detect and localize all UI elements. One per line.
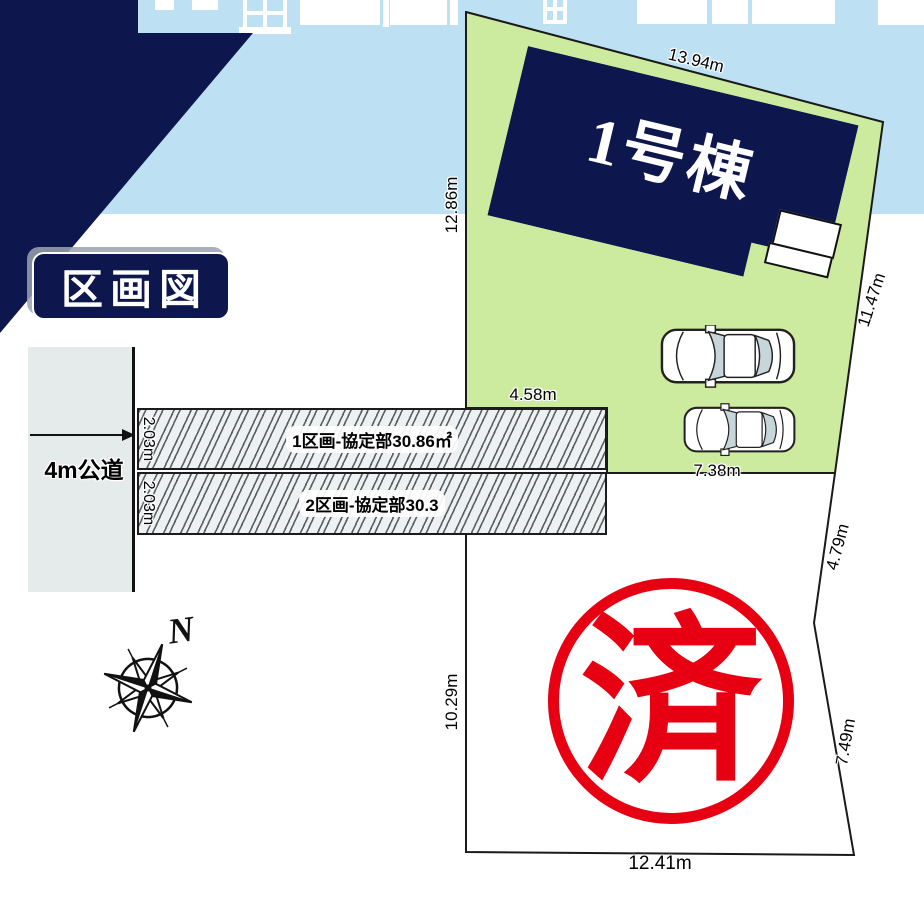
strip-1-width-dim: 2.03m	[139, 417, 157, 461]
strip-1: 1区画-協定部30.86㎡	[137, 408, 607, 470]
dim-inner-left: 4.58m	[509, 385, 556, 405]
strip-2: 2区画-協定部30.3	[137, 472, 607, 535]
road-label: 4m公道	[44, 451, 123, 485]
sold-stamp-text: 済	[580, 610, 762, 792]
window-icon	[155, 0, 174, 10]
dim-inner-bottom: 7.38m	[693, 461, 740, 481]
roof-silhouette	[390, 0, 447, 25]
car-icon	[683, 400, 796, 460]
dim-left: 12.86m	[442, 177, 462, 234]
chimney-icon	[450, 0, 458, 25]
chimney-icon	[383, 0, 389, 27]
map-title-badge: 区画図	[32, 252, 230, 320]
window-icon	[192, 0, 218, 10]
map-title: 区画図	[54, 256, 208, 317]
car-icon	[660, 325, 796, 388]
strip-2-width-dim: 2.03m	[139, 481, 157, 525]
sold-stamp: 済	[548, 578, 794, 824]
roof-silhouette	[300, 0, 380, 25]
dim-plot2-bottom: 12.41m	[628, 853, 691, 875]
dim-plot2-left: 10.29m	[442, 674, 462, 731]
road-arrow-icon	[28, 427, 138, 443]
plot-map: 4m公道 1区画-協定部30.86㎡ 2区画-協定部30.3 2.03m 2.0…	[0, 0, 924, 900]
strip-2-label: 2区画-協定部30.3	[299, 490, 444, 517]
window-sill-icon	[239, 27, 291, 34]
strip-1-label: 1区画-協定部30.86㎡	[286, 426, 458, 453]
